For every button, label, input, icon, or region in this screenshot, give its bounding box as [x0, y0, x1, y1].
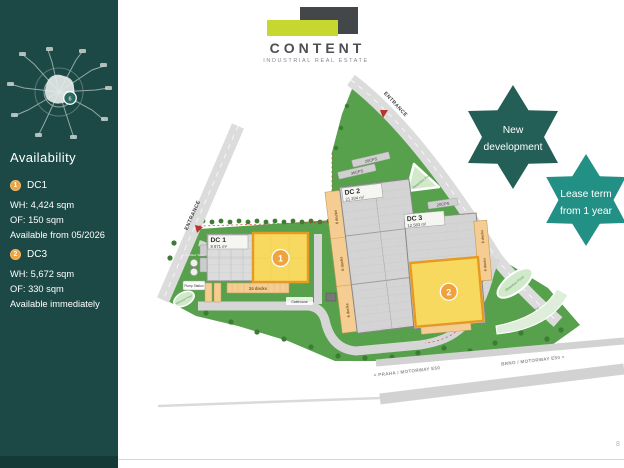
- company-logo: CONTENT INDUSTRIAL REAL ESTATE: [260, 5, 372, 64]
- pump-station-label: Pump Station: [184, 284, 203, 288]
- motorway-label-praha: < PRAHA / MOTORWAY E50: [373, 365, 440, 378]
- star-shape: [468, 85, 558, 189]
- dc1-area: 8 871 m²: [211, 244, 228, 249]
- gatehouse-label: Gatehouse: [291, 300, 308, 304]
- location-map: 6: [4, 44, 114, 148]
- star-shape: [546, 154, 624, 246]
- star-new-line1: New: [503, 125, 524, 136]
- availability-unit-dc3: 2 DC3 WH: 5,672 sqm OF: 330 sqm Availabl…: [10, 249, 114, 312]
- unit-1-office: OF: 150 sqm: [10, 213, 114, 228]
- availability-title: Availability: [10, 150, 76, 165]
- unit-1-name: DC1: [27, 180, 47, 191]
- unit-2-availability: Available immediately: [10, 297, 114, 312]
- star-lease-line2: from 1 year: [560, 206, 613, 217]
- unit-2-badge: 2: [10, 249, 21, 260]
- unit-badge-2-number: 2: [446, 287, 452, 297]
- unit-1-warehouse: WH: 4,424 sqm: [10, 198, 114, 213]
- motorway-label-brno: BRNO / MOTORWAY E50 >: [501, 354, 565, 366]
- availability-unit-dc1: 1 DC1 WH: 4,424 sqm OF: 150 sqm Availabl…: [10, 180, 114, 243]
- sidebar: 6 Availability 1 DC1 WH: 4,424 sqm OF: 1…: [0, 0, 118, 468]
- unit-2-name: DC3: [27, 249, 47, 260]
- building-dc3: 6 docks 6 docks 2 DC 3 12 583 m²: [404, 207, 496, 335]
- star-new-line2: development: [484, 142, 543, 153]
- logo-mark-icon: [260, 5, 372, 36]
- page-number: 8: [616, 441, 620, 448]
- unit-2-warehouse: WH: 5,672 sqm: [10, 267, 114, 282]
- motorway-ramp: [158, 398, 381, 406]
- unit-2-office: OF: 330 sqm: [10, 282, 114, 297]
- fire-water-tanks-label: Fire Water Tanks: [184, 253, 206, 257]
- logo-block-lime: [267, 20, 338, 36]
- dc1-name: DC 1: [211, 237, 227, 244]
- slide: 20CPS 36CPS 20CPS 10CPS Retention Pond R…: [0, 0, 624, 468]
- pump-station: Pump Station: [183, 281, 205, 290]
- star-new-development: New development: [468, 85, 558, 189]
- motorway-south: [380, 369, 624, 399]
- unit-badge-1-number: 1: [278, 254, 283, 264]
- site-location-marker-label: 6: [68, 96, 71, 102]
- logo-tagline: INDUSTRIAL REAL ESTATE: [260, 58, 372, 64]
- logo-name: CONTENT: [260, 40, 372, 56]
- unit-1-availability: Available from 05/2026: [10, 228, 114, 243]
- unit-1-badge: 1: [10, 180, 21, 191]
- star-lease-term: Lease term from 1 year: [546, 154, 624, 246]
- docks-label: 24 docks: [249, 286, 268, 291]
- star-lease-line1: Lease term: [560, 189, 612, 200]
